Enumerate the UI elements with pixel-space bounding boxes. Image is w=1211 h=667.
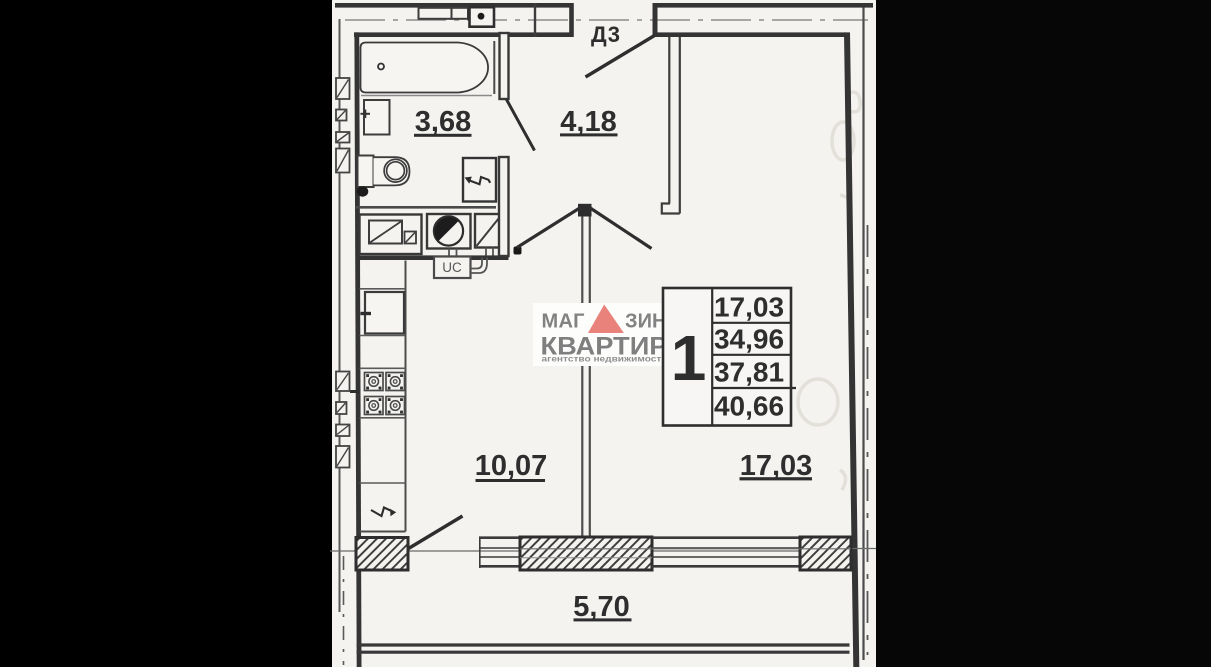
svg-text:4,18: 4,18 — [560, 106, 616, 138]
svg-text:17,03: 17,03 — [714, 292, 784, 323]
svg-text:34,96: 34,96 — [714, 324, 784, 355]
svg-text:Д3: Д3 — [591, 22, 621, 47]
svg-text:1: 1 — [671, 322, 707, 394]
svg-text:5,70: 5,70 — [573, 591, 629, 623]
svg-text:МАГ: МАГ — [542, 311, 587, 333]
svg-text:3,68: 3,68 — [415, 106, 471, 138]
svg-text:10,07: 10,07 — [475, 450, 548, 482]
svg-text:37,81: 37,81 — [714, 357, 784, 388]
svg-text:40,66: 40,66 — [714, 391, 784, 422]
svg-text:агентство недвижимости: агентство недвижимости — [542, 355, 668, 364]
svg-text:UC: UC — [442, 260, 462, 275]
